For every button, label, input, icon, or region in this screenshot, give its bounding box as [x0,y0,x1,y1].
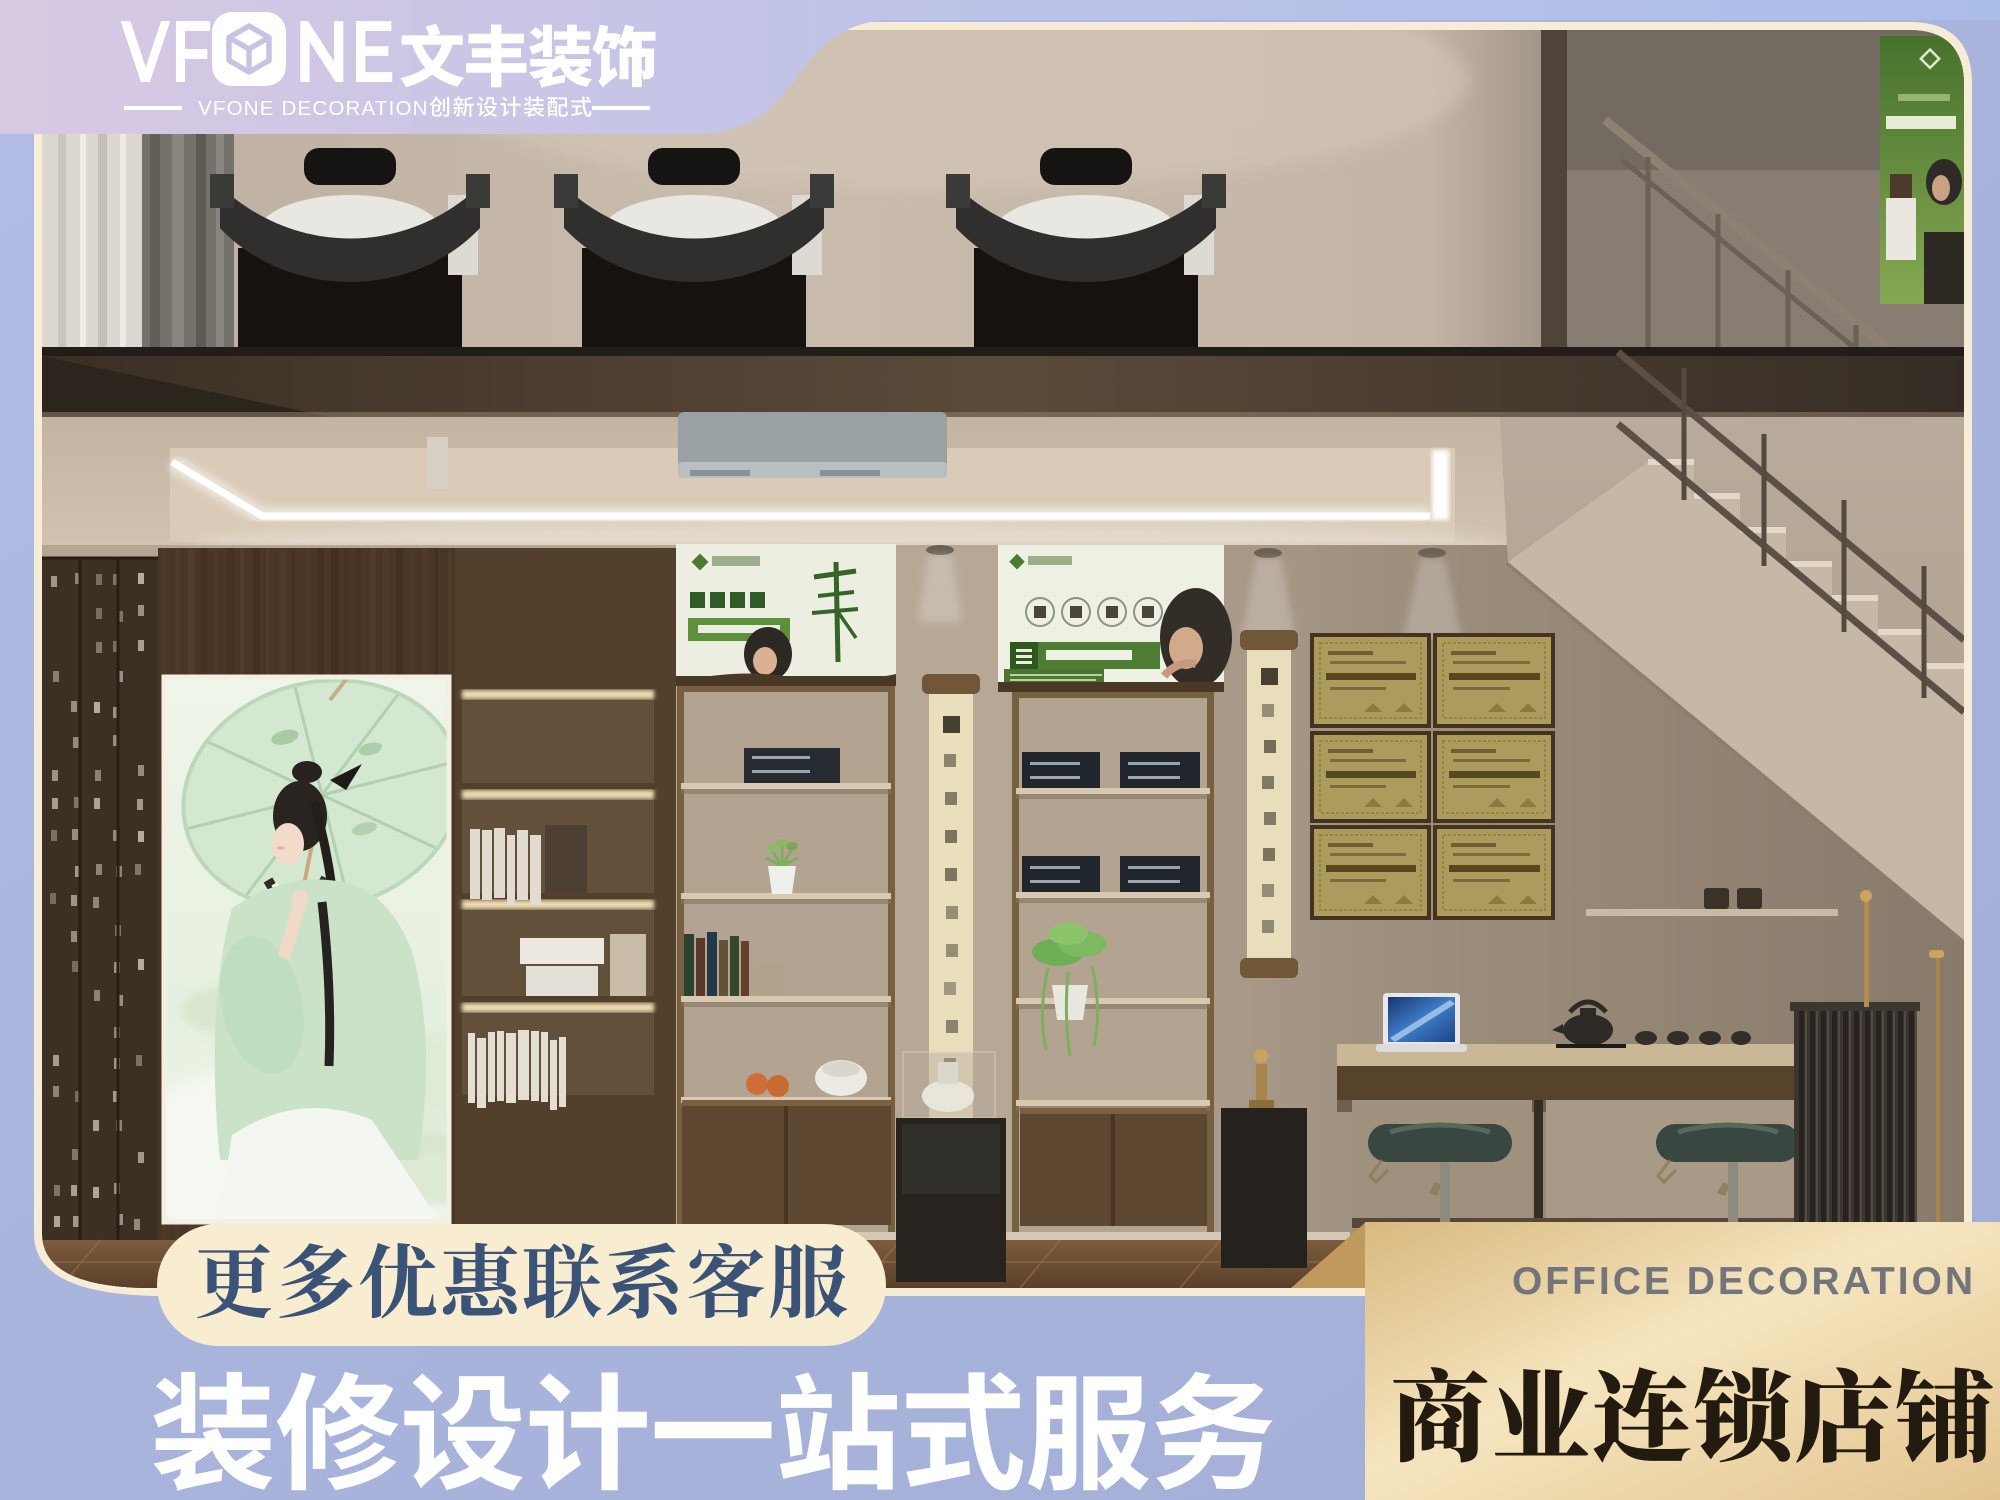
svg-text:VFONE DECORATION: VFONE DECORATION [198,97,429,120]
svg-text:OFFICE DECORATION: OFFICE DECORATION [1512,1260,1976,1303]
